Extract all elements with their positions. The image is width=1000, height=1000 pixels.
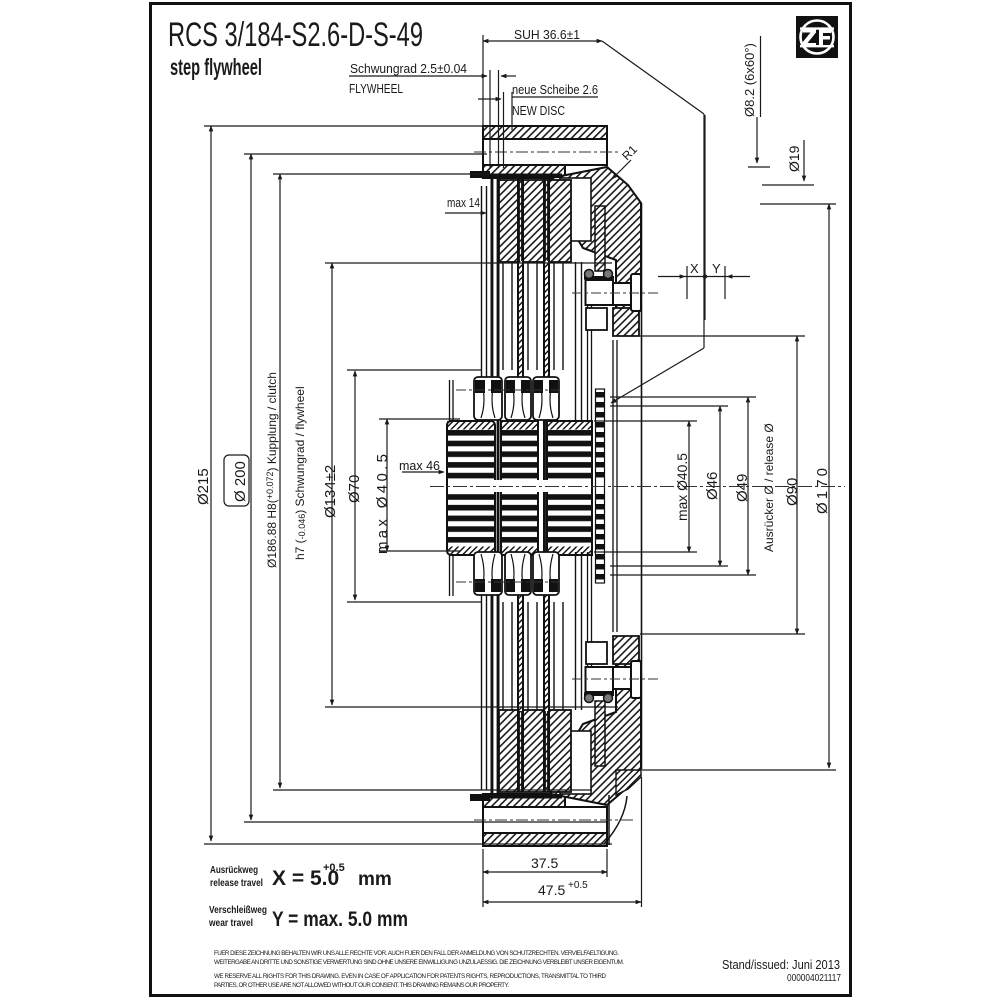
- svg-text:RCS 3/184-S2.6-D-S-49: RCS 3/184-S2.6-D-S-49: [168, 16, 423, 54]
- svg-text:Ø186.88 H8(+0.072) Kupplung /: Ø186.88 H8(+0.072) Kupplung / clutch: [265, 372, 279, 568]
- svg-text:SUH 36.6±1: SUH 36.6±1: [514, 27, 580, 42]
- svg-text:X: X: [690, 261, 699, 276]
- svg-text:neue Scheibe 2.6: neue Scheibe 2.6: [512, 82, 598, 97]
- svg-text:WEITERGABE AN DRITTE UND SONST: WEITERGABE AN DRITTE UND SONSTIGE VERWER…: [214, 959, 624, 966]
- svg-text:Ø8.2 (6x60°): Ø8.2 (6x60°): [742, 43, 757, 117]
- svg-text:max Ø40.5: max Ø40.5: [374, 454, 391, 554]
- svg-text:max 46: max 46: [399, 458, 440, 473]
- svg-text:step flywheel: step flywheel: [170, 54, 262, 80]
- svg-text:000004021117: 000004021117: [787, 973, 841, 984]
- svg-text:47.5: 47.5: [538, 882, 565, 898]
- svg-text:Ausrückweg: Ausrückweg: [210, 865, 258, 876]
- svg-text:NEW DISC: NEW DISC: [512, 103, 565, 118]
- svg-text:Ø46: Ø46: [704, 472, 721, 500]
- svg-text:Y: Y: [712, 261, 721, 276]
- svg-text:37.5: 37.5: [531, 855, 558, 871]
- svg-text:Verschleißweg: Verschleißweg: [209, 905, 267, 916]
- svg-text:Schwungrad 2.5±0.04: Schwungrad 2.5±0.04: [350, 61, 467, 76]
- svg-text:PARTIES, OR OTHER USE ARE NOT: PARTIES, OR OTHER USE ARE NOT ALLOWED WI…: [214, 982, 509, 989]
- svg-text:max 14: max 14: [447, 195, 480, 210]
- svg-text:FUER DIESE ZEICHNUNG BEHALTEN: FUER DIESE ZEICHNUNG BEHALTEN WIR UNS AL…: [214, 950, 619, 957]
- svg-text:mm: mm: [358, 869, 392, 890]
- svg-text:Y = max. 5.0 mm: Y = max. 5.0 mm: [272, 908, 408, 931]
- svg-text:max Ø40.5: max Ø40.5: [674, 453, 690, 521]
- svg-text:wear travel: wear travel: [208, 918, 253, 929]
- svg-text:Ø70: Ø70: [346, 475, 363, 503]
- svg-text:Ø90: Ø90: [784, 478, 801, 506]
- svg-text:Ø 200: Ø 200: [232, 461, 249, 502]
- svg-text:Ø134±2: Ø134±2: [322, 465, 339, 518]
- svg-text:Stand/issued: Juni 2013: Stand/issued: Juni 2013: [722, 957, 840, 972]
- svg-text:release travel: release travel: [210, 878, 263, 889]
- svg-text:WE RESERVE ALL RIGHTS FOR THIS: WE RESERVE ALL RIGHTS FOR THIS DRAWING. …: [214, 973, 607, 980]
- svg-text:FLYWHEEL: FLYWHEEL: [349, 81, 403, 96]
- svg-text:Ø215: Ø215: [195, 468, 212, 505]
- svg-text:+0.5: +0.5: [323, 862, 345, 874]
- svg-text:Ø49: Ø49: [734, 474, 751, 502]
- svg-text:+0.5: +0.5: [568, 880, 588, 891]
- svg-text:Ausrücker Ø / release Ø: Ausrücker Ø / release Ø: [762, 423, 776, 552]
- svg-text:Ø170: Ø170: [814, 468, 831, 514]
- svg-text:Ø19: Ø19: [786, 145, 802, 172]
